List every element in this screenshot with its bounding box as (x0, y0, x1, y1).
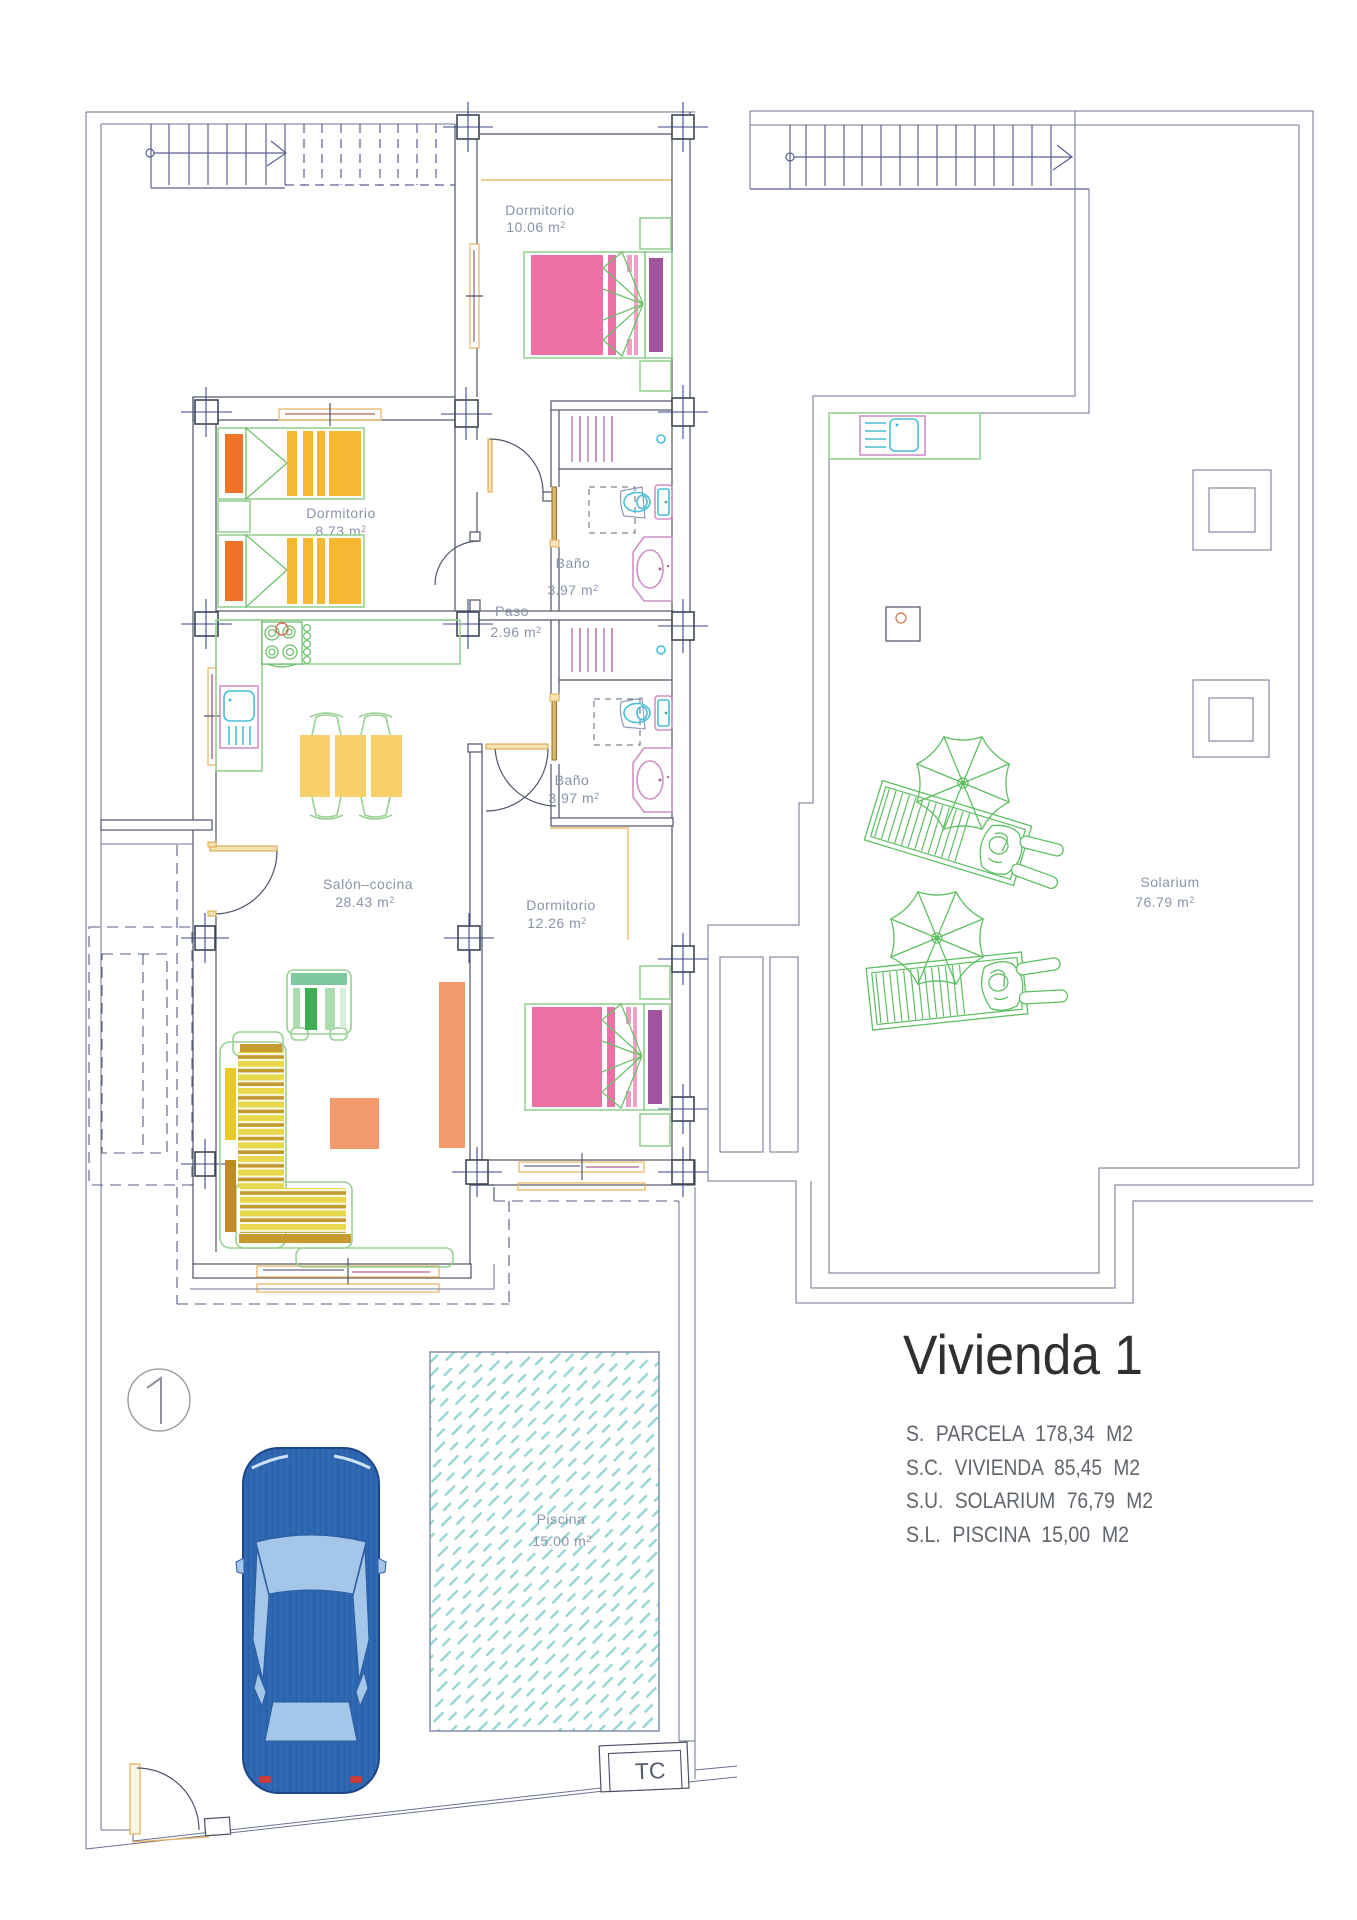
svg-text:3.97 m2: 3.97 m2 (547, 582, 598, 598)
svg-text:Dormitorio: Dormitorio (306, 505, 376, 521)
svg-text:Salón–cocina: Salón–cocina (323, 876, 413, 892)
svg-text:Baño: Baño (556, 555, 591, 571)
svg-text:Vivienda 1: Vivienda 1 (903, 1323, 1143, 1386)
svg-text:10.06 m2: 10.06 m2 (506, 219, 566, 235)
svg-text:Paso: Paso (495, 603, 529, 619)
svg-text:8.73 m2: 8.73 m2 (315, 523, 366, 539)
svg-text:2.96 m2: 2.96 m2 (490, 624, 541, 640)
svg-text:S.C. VIVIENDA 85,45 M2: S.C. VIVIENDA 85,45 M2 (906, 1455, 1140, 1480)
svg-text:12.26 m2: 12.26 m2 (527, 915, 587, 931)
svg-text:S. PARCELA 178,34 M2: S. PARCELA 178,34 M2 (906, 1421, 1133, 1446)
svg-text:S.L. PISCINA 15,00 M2: S.L. PISCINA 15,00 M2 (906, 1522, 1129, 1547)
svg-text:Dormitorio: Dormitorio (526, 897, 596, 913)
svg-text:28.43 m2: 28.43 m2 (335, 894, 395, 910)
svg-text:Baño: Baño (555, 772, 590, 788)
svg-text:15.00 m2: 15.00 m2 (532, 1533, 592, 1549)
svg-text:TC: TC (634, 1757, 666, 1784)
svg-text:S.U. SOLARIUM 76,79 M2: S.U. SOLARIUM 76,79 M2 (906, 1488, 1153, 1513)
svg-text:76.79 m2: 76.79 m2 (1135, 894, 1195, 910)
svg-text:3.97 m2: 3.97 m2 (548, 790, 599, 806)
svg-text:Piscina: Piscina (537, 1511, 586, 1527)
svg-text:Dormitorio: Dormitorio (505, 202, 575, 218)
svg-text:Solarium: Solarium (1140, 874, 1199, 890)
